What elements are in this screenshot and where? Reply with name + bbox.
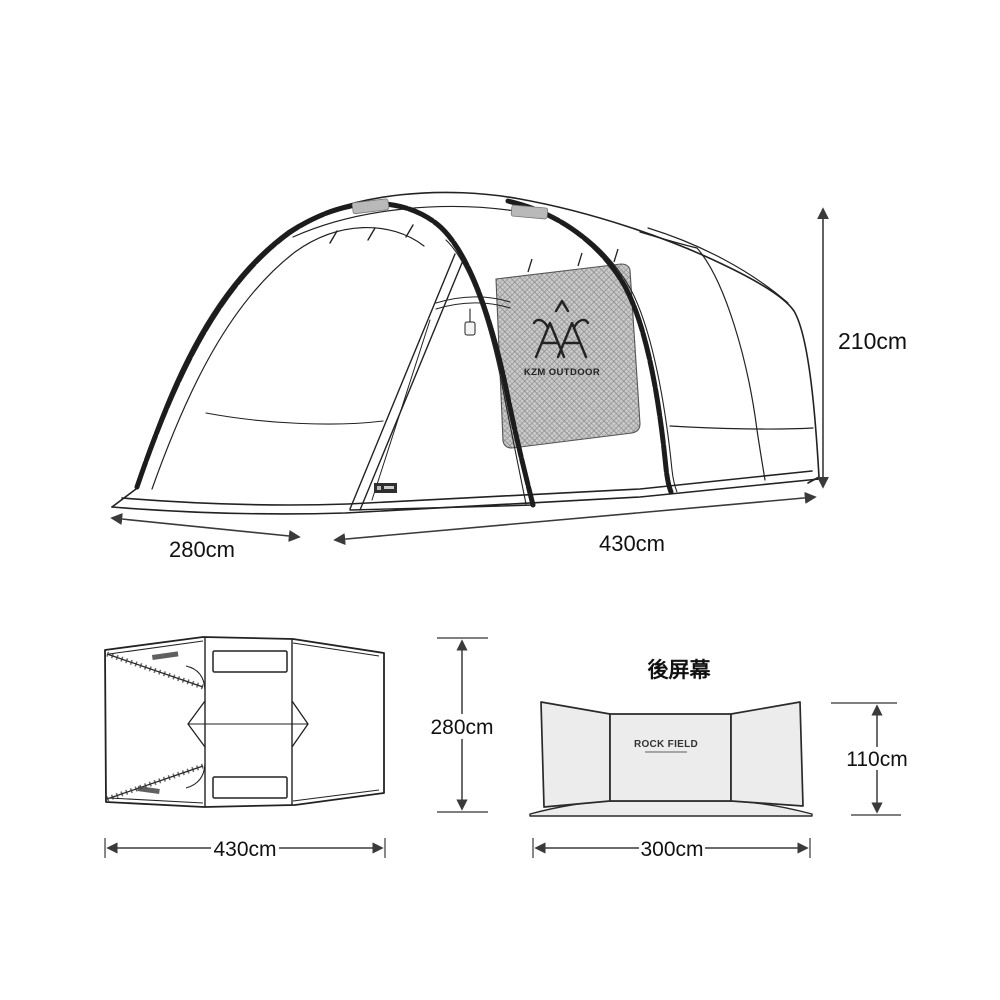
diagram-canvas: KZM OUTDOOR <box>0 0 1000 1000</box>
plan-roof-window <box>213 777 287 798</box>
mesh-window <box>496 264 640 448</box>
windscreen-right-panel <box>731 702 803 806</box>
tent-body <box>112 192 819 513</box>
rear-windscreen-view: 後屏幕 ROCK FIELD 110cm 300cm <box>530 658 908 861</box>
rockfield-logo-text: ROCK FIELD <box>634 739 698 750</box>
rockfield-tagline-mark <box>645 751 687 753</box>
windscreen-title: 後屏幕 <box>648 658 712 682</box>
windscreen-center-panel <box>610 714 731 801</box>
screen-dim-height-label: 110cm <box>846 748 907 771</box>
plan-dim-depth-label: 280cm <box>430 716 493 739</box>
tent-perspective-view: KZM OUTDOOR <box>112 192 907 562</box>
windscreen-left-panel <box>541 702 610 807</box>
kzm-logo-text: KZM OUTDOOR <box>524 367 600 378</box>
tent-top-down-view: 280cm 430cm <box>105 637 494 861</box>
product-dimension-sheet: KZM OUTDOOR <box>0 0 1000 1000</box>
dim-length-label: 430cm <box>599 531 665 556</box>
screen-dim-width-label: 300cm <box>640 838 703 861</box>
fabric-brand-tag <box>374 483 397 493</box>
plan-dim-length-label: 430cm <box>213 838 276 861</box>
inner-hanging-strap <box>465 322 475 335</box>
dim-width-label: 280cm <box>169 537 235 562</box>
plan-roof-window <box>213 651 287 672</box>
dim-height-label: 210cm <box>838 328 907 354</box>
